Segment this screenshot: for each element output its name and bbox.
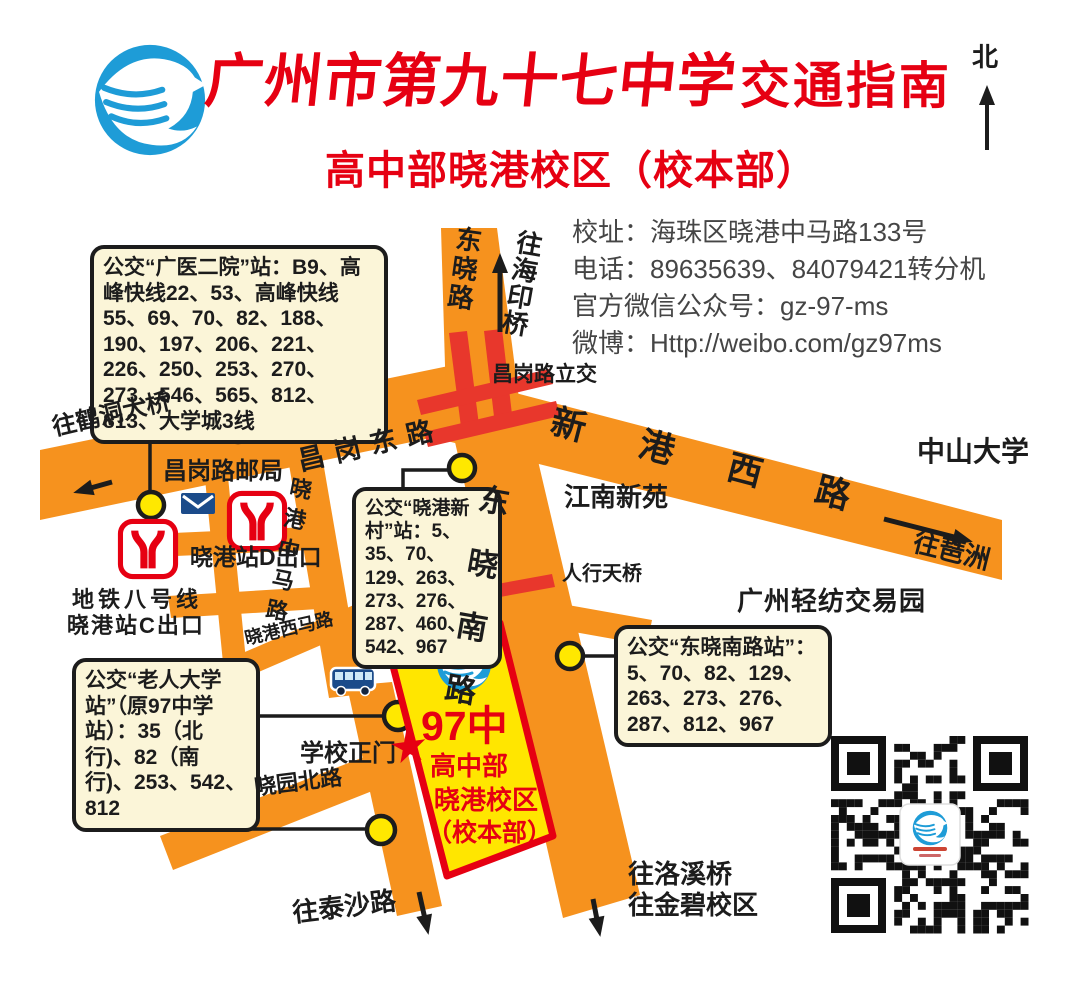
school-logo-icon	[95, 45, 206, 155]
contact-phone: 电话：89635639、84079421转分机	[572, 251, 985, 288]
bus-stop-marker	[138, 492, 164, 518]
label-qingfang-market: 广州轻纺交易园	[737, 588, 926, 615]
bus-stop-marker	[449, 455, 475, 481]
school-badge: 97中	[421, 692, 508, 752]
school-gate-star-icon: ★	[388, 724, 429, 771]
contact-address: 校址：海珠区晓港中马路133号	[572, 214, 985, 251]
label-xiaogang-exit-c: 晓港站C出口	[67, 614, 205, 637]
busbox-dongxiao-nanlu: 公交“东晓南路站”：5、70、82、129、263、273、276、287、81…	[614, 625, 832, 747]
page-title: 广州市第九十七中学	[202, 34, 742, 118]
contact-wechat: 官方微信公众号：gz-97-ms	[572, 288, 985, 325]
label-school-main-gate: 学校正门	[300, 741, 396, 766]
post-office-icon	[181, 493, 215, 514]
label-changgang-overpass: 昌岗路立交	[492, 364, 597, 386]
school-line1: 高中部	[430, 746, 508, 783]
label-zhongshan-university: 中山大学	[917, 437, 1029, 466]
label-to-jinbi-campus: 往金碧校区	[628, 892, 758, 919]
page-title-guide: 交通指南	[740, 46, 952, 118]
contact-info: 校址：海珠区晓港中马路133号 电话：89635639、84079421转分机 …	[572, 214, 985, 362]
metro-logo-icon	[120, 521, 175, 576]
north-label: 北	[972, 44, 998, 71]
label-to-luoxi-bridge: 往洛溪桥	[628, 861, 732, 888]
label-jiangnan-xinyuan: 江南新苑	[564, 484, 668, 511]
campus-subtitle: 高中部晓港校区（校本部）	[325, 138, 817, 196]
bus-stop-marker	[367, 816, 395, 844]
school-line2: 晓港校区	[434, 780, 538, 817]
label-footbridge: 人行天桥	[562, 564, 642, 585]
label-xiaogang-exit-d: 晓港站D出口	[190, 545, 322, 569]
label-metro-line-8: 地铁八号线	[72, 588, 202, 611]
contact-weibo: 微博：Http://weibo.com/gz97ms	[572, 325, 985, 362]
label-changgang-post-office: 昌岗路邮局	[163, 459, 283, 484]
bus-stop-marker	[557, 643, 583, 669]
qr-code	[825, 730, 1035, 940]
school-line3: （校本部）	[427, 813, 552, 849]
busbox-laoren-daxue: 公交“老人大学站”（原97中学站）：35（北行)、82（南行)、253、542、…	[72, 658, 260, 832]
transit-guide-poster: 广州市第九十七中学 交通指南 高中部晓港校区（校本部） 北 校址：海珠区晓港中马…	[0, 0, 1080, 993]
qr-center-logo	[900, 804, 960, 865]
